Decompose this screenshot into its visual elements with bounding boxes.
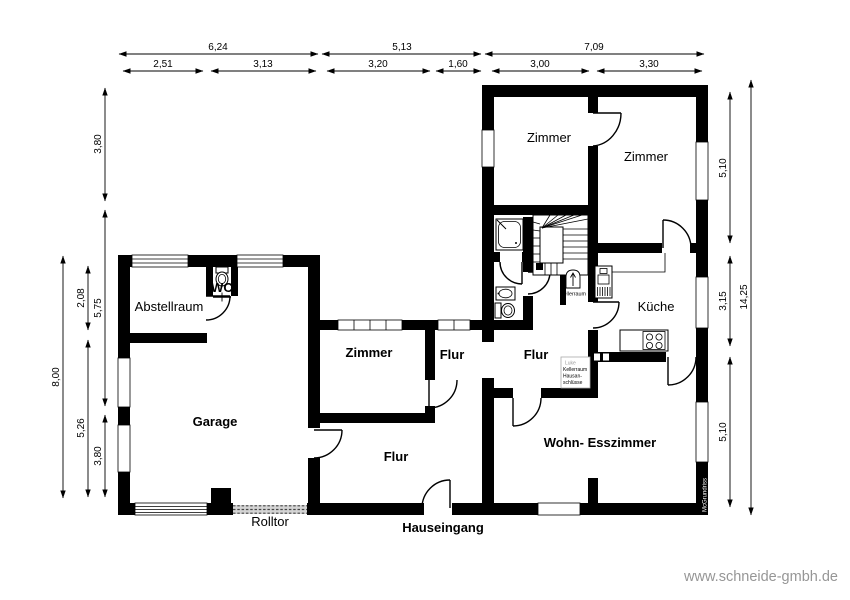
room-label-flur: Flur — [440, 347, 465, 362]
washbasin-icon — [496, 287, 515, 300]
door-arc — [663, 220, 691, 248]
dim-label: 5,75 — [93, 298, 104, 318]
cellar-hatch-icon — [566, 270, 580, 288]
toilet-icon — [495, 303, 515, 318]
door-arc — [513, 398, 541, 426]
window — [482, 130, 494, 167]
window — [237, 255, 283, 267]
label-rolltor: Rolltor — [251, 514, 289, 529]
dim-label: 6,24 — [208, 42, 228, 53]
door-arc — [593, 302, 619, 328]
label-hauseingang: Hauseingang — [402, 520, 484, 535]
room-label-wc: WC — [211, 280, 233, 295]
utility-note-box: Luke Kellerraum Hausan- schlüsse — [561, 357, 590, 388]
room-label-zimmer: Zimmer — [527, 130, 572, 145]
stove-icon — [620, 330, 668, 351]
kellerraum-label: Kellerraum — [560, 292, 587, 298]
outer-walls — [118, 85, 708, 515]
dim-label: 3,30 — [639, 59, 659, 70]
window — [538, 503, 580, 515]
rolltor-opening — [233, 505, 307, 514]
dimension-lines-right: 5,10 3,15 5,10 14,25 — [718, 80, 751, 515]
plan-watermark: McGrundriss — [703, 478, 709, 512]
room-label-garage: Garage — [193, 414, 238, 429]
dim-label: 5,13 — [392, 42, 412, 53]
window — [696, 402, 708, 462]
dim-label: 2,08 — [76, 288, 87, 308]
door-arc — [668, 357, 696, 385]
room-label-zimmer: Zimmer — [346, 345, 393, 360]
dim-label: 3,13 — [253, 59, 273, 70]
website-url: www.schneide-gmbh.de — [683, 569, 838, 585]
dim-label: 5,26 — [76, 418, 87, 438]
dim-label: 8,00 — [51, 367, 62, 387]
window — [438, 320, 470, 330]
window — [118, 425, 130, 472]
room-label-abstellraum: Abstellraum — [135, 299, 204, 314]
dim-label: 3,80 — [93, 134, 104, 154]
dim-label: 3,00 — [530, 59, 550, 70]
window — [696, 277, 708, 328]
door-arc — [314, 430, 342, 458]
note-line: schlüsse — [563, 380, 583, 386]
dim-label: 3,15 — [718, 291, 729, 311]
dimension-lines-left: 3,80 5,75 3,80 2,08 5,26 8,00 — [51, 88, 105, 498]
room-label-kueche: Küche — [638, 299, 675, 314]
window — [696, 142, 708, 200]
dim-label: 7,09 — [584, 42, 604, 53]
dim-label: 14,25 — [739, 284, 750, 309]
door-arc — [500, 262, 522, 284]
room-label-wohn-esszimmer: Wohn- Esszimmer — [544, 435, 656, 450]
dim-label: 3,80 — [93, 446, 104, 466]
bathtub-icon — [496, 219, 523, 250]
door-arc — [206, 296, 230, 320]
note-line: Hausan- — [563, 374, 582, 380]
window — [338, 320, 402, 330]
window — [118, 358, 130, 407]
door-arc — [422, 480, 450, 508]
dim-label: 5,10 — [718, 158, 729, 178]
floor-plan-drawing: 6,24 5,13 7,09 2,51 3,13 3,20 1,60 3,00 … — [0, 0, 850, 600]
kitchen-sink-icon — [595, 266, 612, 298]
dim-label: 2,51 — [153, 59, 173, 70]
note-line: Kellerraum — [563, 367, 587, 373]
floor-plan-page: 6,24 5,13 7,09 2,51 3,13 3,20 1,60 3,00 … — [0, 0, 850, 600]
fixtures — [216, 219, 668, 351]
dim-label: 1,60 — [448, 59, 468, 70]
door-arc — [593, 113, 621, 146]
dim-label: 5,10 — [718, 422, 729, 442]
kitchen-counter — [612, 253, 665, 272]
dimension-lines-top: 6,24 5,13 7,09 2,51 3,13 3,20 1,60 3,00 … — [119, 42, 704, 71]
room-label-flur: Flur — [384, 449, 409, 464]
room-label-flur: Flur — [524, 347, 549, 362]
dim-label: 3,20 — [368, 59, 388, 70]
door-arc — [429, 380, 457, 408]
window — [132, 255, 188, 267]
window — [135, 503, 207, 515]
note-line: Luke — [565, 361, 576, 367]
room-label-zimmer: Zimmer — [624, 149, 669, 164]
